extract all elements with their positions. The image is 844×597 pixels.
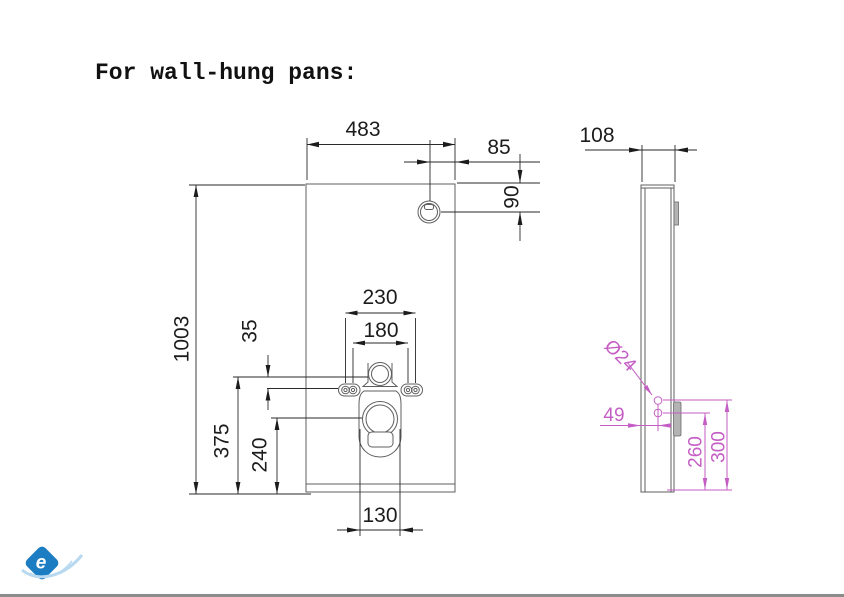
dim-button-offset-y: 90: [441, 154, 540, 241]
dim-fixing-height: 375: [211, 377, 241, 494]
side-view: [641, 185, 681, 492]
dim-label-260: 260: [686, 436, 707, 468]
dim-label-90: 90: [501, 185, 524, 208]
dim-label-108: 108: [579, 124, 614, 147]
side-flush-button: [674, 202, 679, 225]
outlet-pipe-outer: [363, 402, 398, 437]
dim-label-180: 180: [363, 319, 398, 342]
drawing-svg: 483 85 90: [0, 0, 844, 597]
page-title: For wall-hung pans:: [95, 60, 357, 86]
dim-label-1003: 1003: [171, 316, 194, 363]
dim-label-130: 130: [362, 504, 397, 527]
dim-label-300: 300: [709, 431, 730, 463]
dim-label-diameter: Ø24: [600, 336, 641, 377]
side-panel-outline: [641, 185, 674, 492]
technical-drawing-page: For wall-hung pans:: [0, 0, 844, 597]
dim-label-230: 230: [362, 286, 397, 309]
side-outlet-connector: [674, 402, 682, 436]
brand-logo: e EGEVİTRİFİYE: [18, 542, 278, 588]
dim-label-35: 35: [239, 319, 262, 342]
dim-label-85: 85: [487, 136, 510, 159]
dim-label-375: 375: [211, 423, 234, 458]
dim-label-49: 49: [603, 405, 624, 426]
dim-label-483: 483: [345, 118, 380, 141]
dim-label-240: 240: [249, 437, 272, 472]
logo-letter: e: [36, 553, 47, 574]
logo-icon: e: [18, 542, 108, 588]
outlet-seal: [368, 432, 393, 447]
dim-depth: 108: [579, 124, 697, 182]
dim-width: 483: [307, 118, 455, 180]
